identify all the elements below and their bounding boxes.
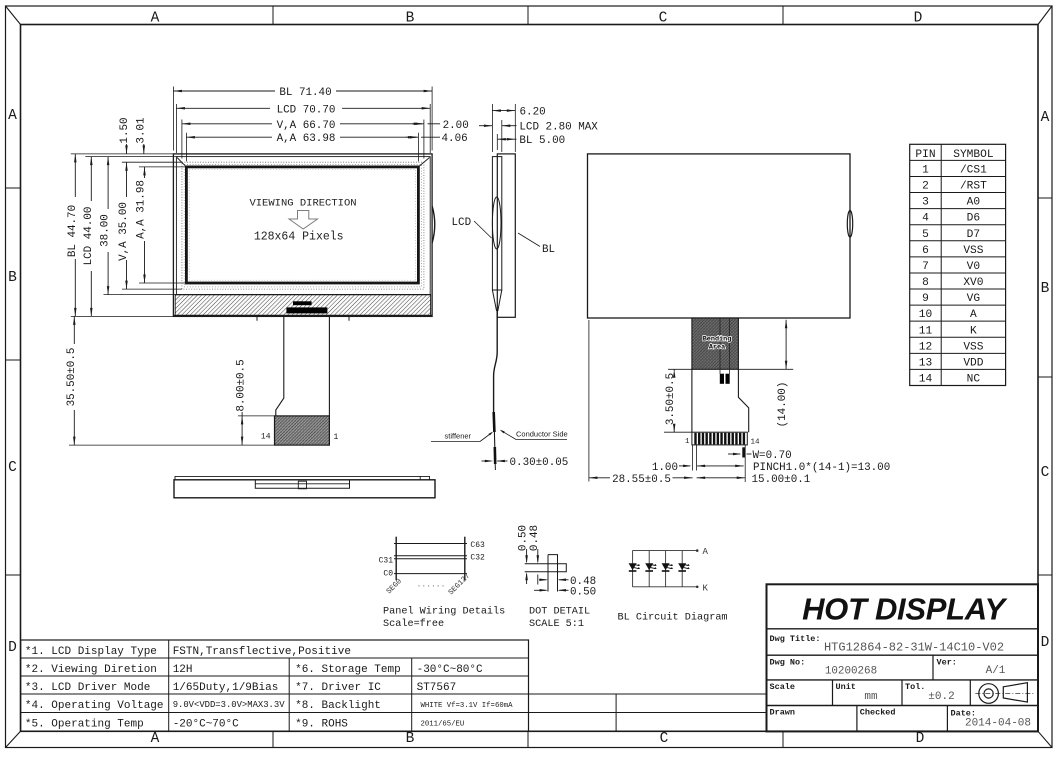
svg-text:C: C xyxy=(8,460,17,476)
svg-text:HTG12864-82-31W-14C10-V02: HTG12864-82-31W-14C10-V02 xyxy=(824,641,1004,655)
svg-text:8: 8 xyxy=(922,277,929,289)
svg-text:LCD 70.70: LCD 70.70 xyxy=(277,104,336,116)
svg-text:Panel Wiring Details: Panel Wiring Details xyxy=(383,606,505,618)
svg-text:0.50: 0.50 xyxy=(570,586,596,598)
svg-text:13: 13 xyxy=(919,357,932,369)
svg-text:B: B xyxy=(8,270,17,286)
svg-text:*8. Backlight: *8. Backlight xyxy=(295,700,381,712)
svg-text:V,A 35.00: V,A 35.00 xyxy=(118,202,130,261)
svg-text:0.50: 0.50 xyxy=(518,525,530,551)
svg-text:HOT DISPLAY: HOT DISPLAY xyxy=(802,592,1008,627)
svg-text:C: C xyxy=(659,11,668,27)
svg-text:5: 5 xyxy=(922,229,929,241)
svg-text:B: B xyxy=(406,11,415,27)
svg-text:1: 1 xyxy=(685,438,690,446)
svg-text:SYMBOL: SYMBOL xyxy=(953,149,994,161)
svg-text:3.01: 3.01 xyxy=(135,117,147,144)
svg-text:35.50±0.5: 35.50±0.5 xyxy=(66,348,78,407)
svg-text:A,A 31.98: A,A 31.98 xyxy=(136,180,148,239)
svg-text:0.48: 0.48 xyxy=(529,525,541,551)
svg-text:-20°C~70°C: -20°C~70°C xyxy=(173,718,239,730)
svg-text:BL 71.40: BL 71.40 xyxy=(279,87,331,99)
svg-text:0.30±0.05: 0.30±0.05 xyxy=(510,457,569,469)
svg-text:*9. ROHS: *9. ROHS xyxy=(295,718,348,730)
svg-text:1/65Duty,1/9Bias: 1/65Duty,1/9Bias xyxy=(173,682,279,694)
svg-text:BL Circuit Diagram: BL Circuit Diagram xyxy=(618,612,728,624)
svg-text:2.00: 2.00 xyxy=(443,120,469,132)
svg-text:A: A xyxy=(703,547,709,557)
svg-text:A: A xyxy=(1041,110,1050,126)
svg-text:stiffener: stiffener xyxy=(445,432,472,441)
svg-text:6: 6 xyxy=(922,245,929,257)
svg-text:BL: BL xyxy=(542,244,555,256)
svg-text:SCALE 5:1: SCALE 5:1 xyxy=(529,619,584,630)
svg-text:NC: NC xyxy=(967,374,981,386)
svg-text:C: C xyxy=(1041,465,1050,481)
svg-text:C: C xyxy=(660,731,669,747)
svg-text:(14.00): (14.00) xyxy=(777,382,789,428)
svg-text:Scale=free: Scale=free xyxy=(383,618,444,630)
svg-text:C31: C31 xyxy=(379,556,394,565)
svg-text:Tol.: Tol. xyxy=(905,682,925,692)
svg-text:14: 14 xyxy=(919,374,933,386)
svg-text:2011/65/EU: 2011/65/EU xyxy=(421,720,465,728)
svg-text:Scale: Scale xyxy=(770,682,796,692)
svg-text:Dwg Title:: Dwg Title: xyxy=(770,634,821,644)
svg-text:A: A xyxy=(151,731,160,747)
svg-text:D7: D7 xyxy=(967,229,980,241)
svg-text:......: ...... xyxy=(417,581,446,590)
svg-text:BL 44.70: BL 44.70 xyxy=(67,205,79,257)
svg-text:10200268: 10200268 xyxy=(825,666,877,678)
svg-text:/RST: /RST xyxy=(960,181,987,193)
svg-text:9.0V<VDD=3.0V>MAX3.3V: 9.0V<VDD=3.0V>MAX3.3V xyxy=(173,700,286,710)
svg-text:Bending: Bending xyxy=(703,336,732,344)
svg-text:A: A xyxy=(8,108,17,124)
svg-text:Checked: Checked xyxy=(860,708,896,718)
svg-text:VIEWING DIRECTION: VIEWING DIRECTION xyxy=(249,197,356,209)
svg-text:VDD: VDD xyxy=(963,357,983,369)
svg-text:2014-04-08: 2014-04-08 xyxy=(965,718,1031,730)
svg-text:A0: A0 xyxy=(967,197,981,209)
svg-text:4: 4 xyxy=(922,213,929,225)
svg-text:4.06: 4.06 xyxy=(442,133,468,145)
svg-text:C63: C63 xyxy=(470,541,485,550)
svg-text:B: B xyxy=(406,731,415,747)
svg-text:A: A xyxy=(151,11,160,27)
svg-text:C32: C32 xyxy=(470,553,485,562)
svg-text:VSS: VSS xyxy=(963,245,983,257)
svg-text:1.50: 1.50 xyxy=(119,117,131,143)
svg-text:/CS1: /CS1 xyxy=(960,164,987,176)
svg-text:14: 14 xyxy=(261,433,271,442)
svg-text:A/1: A/1 xyxy=(986,665,1006,677)
svg-text:3: 3 xyxy=(922,197,929,209)
svg-text:V,A 66.70: V,A 66.70 xyxy=(277,120,336,132)
svg-text:PIN: PIN xyxy=(915,149,935,161)
svg-text:9: 9 xyxy=(922,293,929,305)
svg-text:D: D xyxy=(1041,635,1050,651)
svg-text:10: 10 xyxy=(919,309,933,321)
svg-text:A,A 63.98: A,A 63.98 xyxy=(277,133,336,145)
svg-text:LCD 44.00: LCD 44.00 xyxy=(83,207,95,266)
svg-text:WHITE Vf=3.1V If=60mA: WHITE Vf=3.1V If=60mA xyxy=(421,702,514,710)
svg-text:Drawn: Drawn xyxy=(770,708,796,718)
svg-text:K: K xyxy=(703,583,709,593)
svg-text:28.55±0.5: 28.55±0.5 xyxy=(612,474,671,486)
svg-text:Area: Area xyxy=(709,344,725,352)
svg-text:ST7567: ST7567 xyxy=(417,682,457,694)
svg-text:Unit: Unit xyxy=(836,682,856,692)
svg-text:D: D xyxy=(8,640,17,656)
svg-text:128x64 Pixels: 128x64 Pixels xyxy=(254,231,344,244)
svg-text:6.20: 6.20 xyxy=(520,107,546,119)
svg-text:C0: C0 xyxy=(383,570,393,579)
svg-text:3.50±0.5: 3.50±0.5 xyxy=(665,373,677,425)
svg-text:PINCH1.0*(14-1)=13.00: PINCH1.0*(14-1)=13.00 xyxy=(753,462,890,474)
svg-text:mm: mm xyxy=(864,691,878,703)
svg-text:Conductor Side: Conductor Side xyxy=(516,430,568,439)
svg-text:12H: 12H xyxy=(173,664,193,676)
svg-text:B: B xyxy=(1041,281,1050,297)
svg-text:1.00: 1.00 xyxy=(652,462,678,474)
svg-text:XV0: XV0 xyxy=(963,277,983,289)
svg-text:*1. LCD Display Type: *1. LCD Display Type xyxy=(25,646,157,658)
svg-text:38.00: 38.00 xyxy=(100,214,112,247)
svg-text:*6. Storage Temp: *6. Storage Temp xyxy=(295,664,401,676)
svg-text:1: 1 xyxy=(334,433,339,442)
svg-text:12: 12 xyxy=(919,341,932,353)
svg-text:K: K xyxy=(970,325,977,337)
svg-text:V0: V0 xyxy=(967,261,981,273)
svg-text:11: 11 xyxy=(919,325,933,337)
svg-text:W=0.70: W=0.70 xyxy=(753,450,792,462)
svg-text:*7. Driver IC: *7. Driver IC xyxy=(295,682,381,694)
svg-text:7: 7 xyxy=(922,261,929,273)
svg-text:Dwg No:: Dwg No: xyxy=(770,658,806,668)
svg-text:D6: D6 xyxy=(967,213,980,225)
svg-text:*3. LCD Driver Mode: *3. LCD Driver Mode xyxy=(25,682,150,694)
svg-text:15.00±0.1: 15.00±0.1 xyxy=(752,474,811,486)
svg-text:VG: VG xyxy=(967,293,981,305)
svg-text:FSTN,Transflective,Positive: FSTN,Transflective,Positive xyxy=(173,646,351,658)
svg-text:14: 14 xyxy=(751,439,761,447)
svg-text:VSS: VSS xyxy=(963,341,983,353)
svg-text:A: A xyxy=(970,309,977,321)
svg-text:LCD: LCD xyxy=(452,217,472,229)
svg-text:*2. Viewing Diretion: *2. Viewing Diretion xyxy=(25,664,157,676)
svg-text:D: D xyxy=(916,731,925,747)
svg-text:LCD 2.80 MAX: LCD 2.80 MAX xyxy=(519,122,598,134)
svg-text:8.00±0.5: 8.00±0.5 xyxy=(236,359,248,411)
svg-text:BL 5.00: BL 5.00 xyxy=(519,135,565,147)
svg-text:*4. Operating Voltage: *4. Operating Voltage xyxy=(25,700,164,712)
svg-text:2: 2 xyxy=(922,181,929,193)
svg-text:*5. Operating Temp: *5. Operating Temp xyxy=(25,718,144,730)
svg-text:±0.2: ±0.2 xyxy=(928,691,954,703)
svg-text:D: D xyxy=(914,11,923,27)
svg-text:-30°C~80°C: -30°C~80°C xyxy=(417,664,483,676)
svg-text:DOT DETAIL: DOT DETAIL xyxy=(529,607,590,618)
svg-text:Ver:: Ver: xyxy=(937,658,957,668)
svg-text:1: 1 xyxy=(922,164,929,176)
